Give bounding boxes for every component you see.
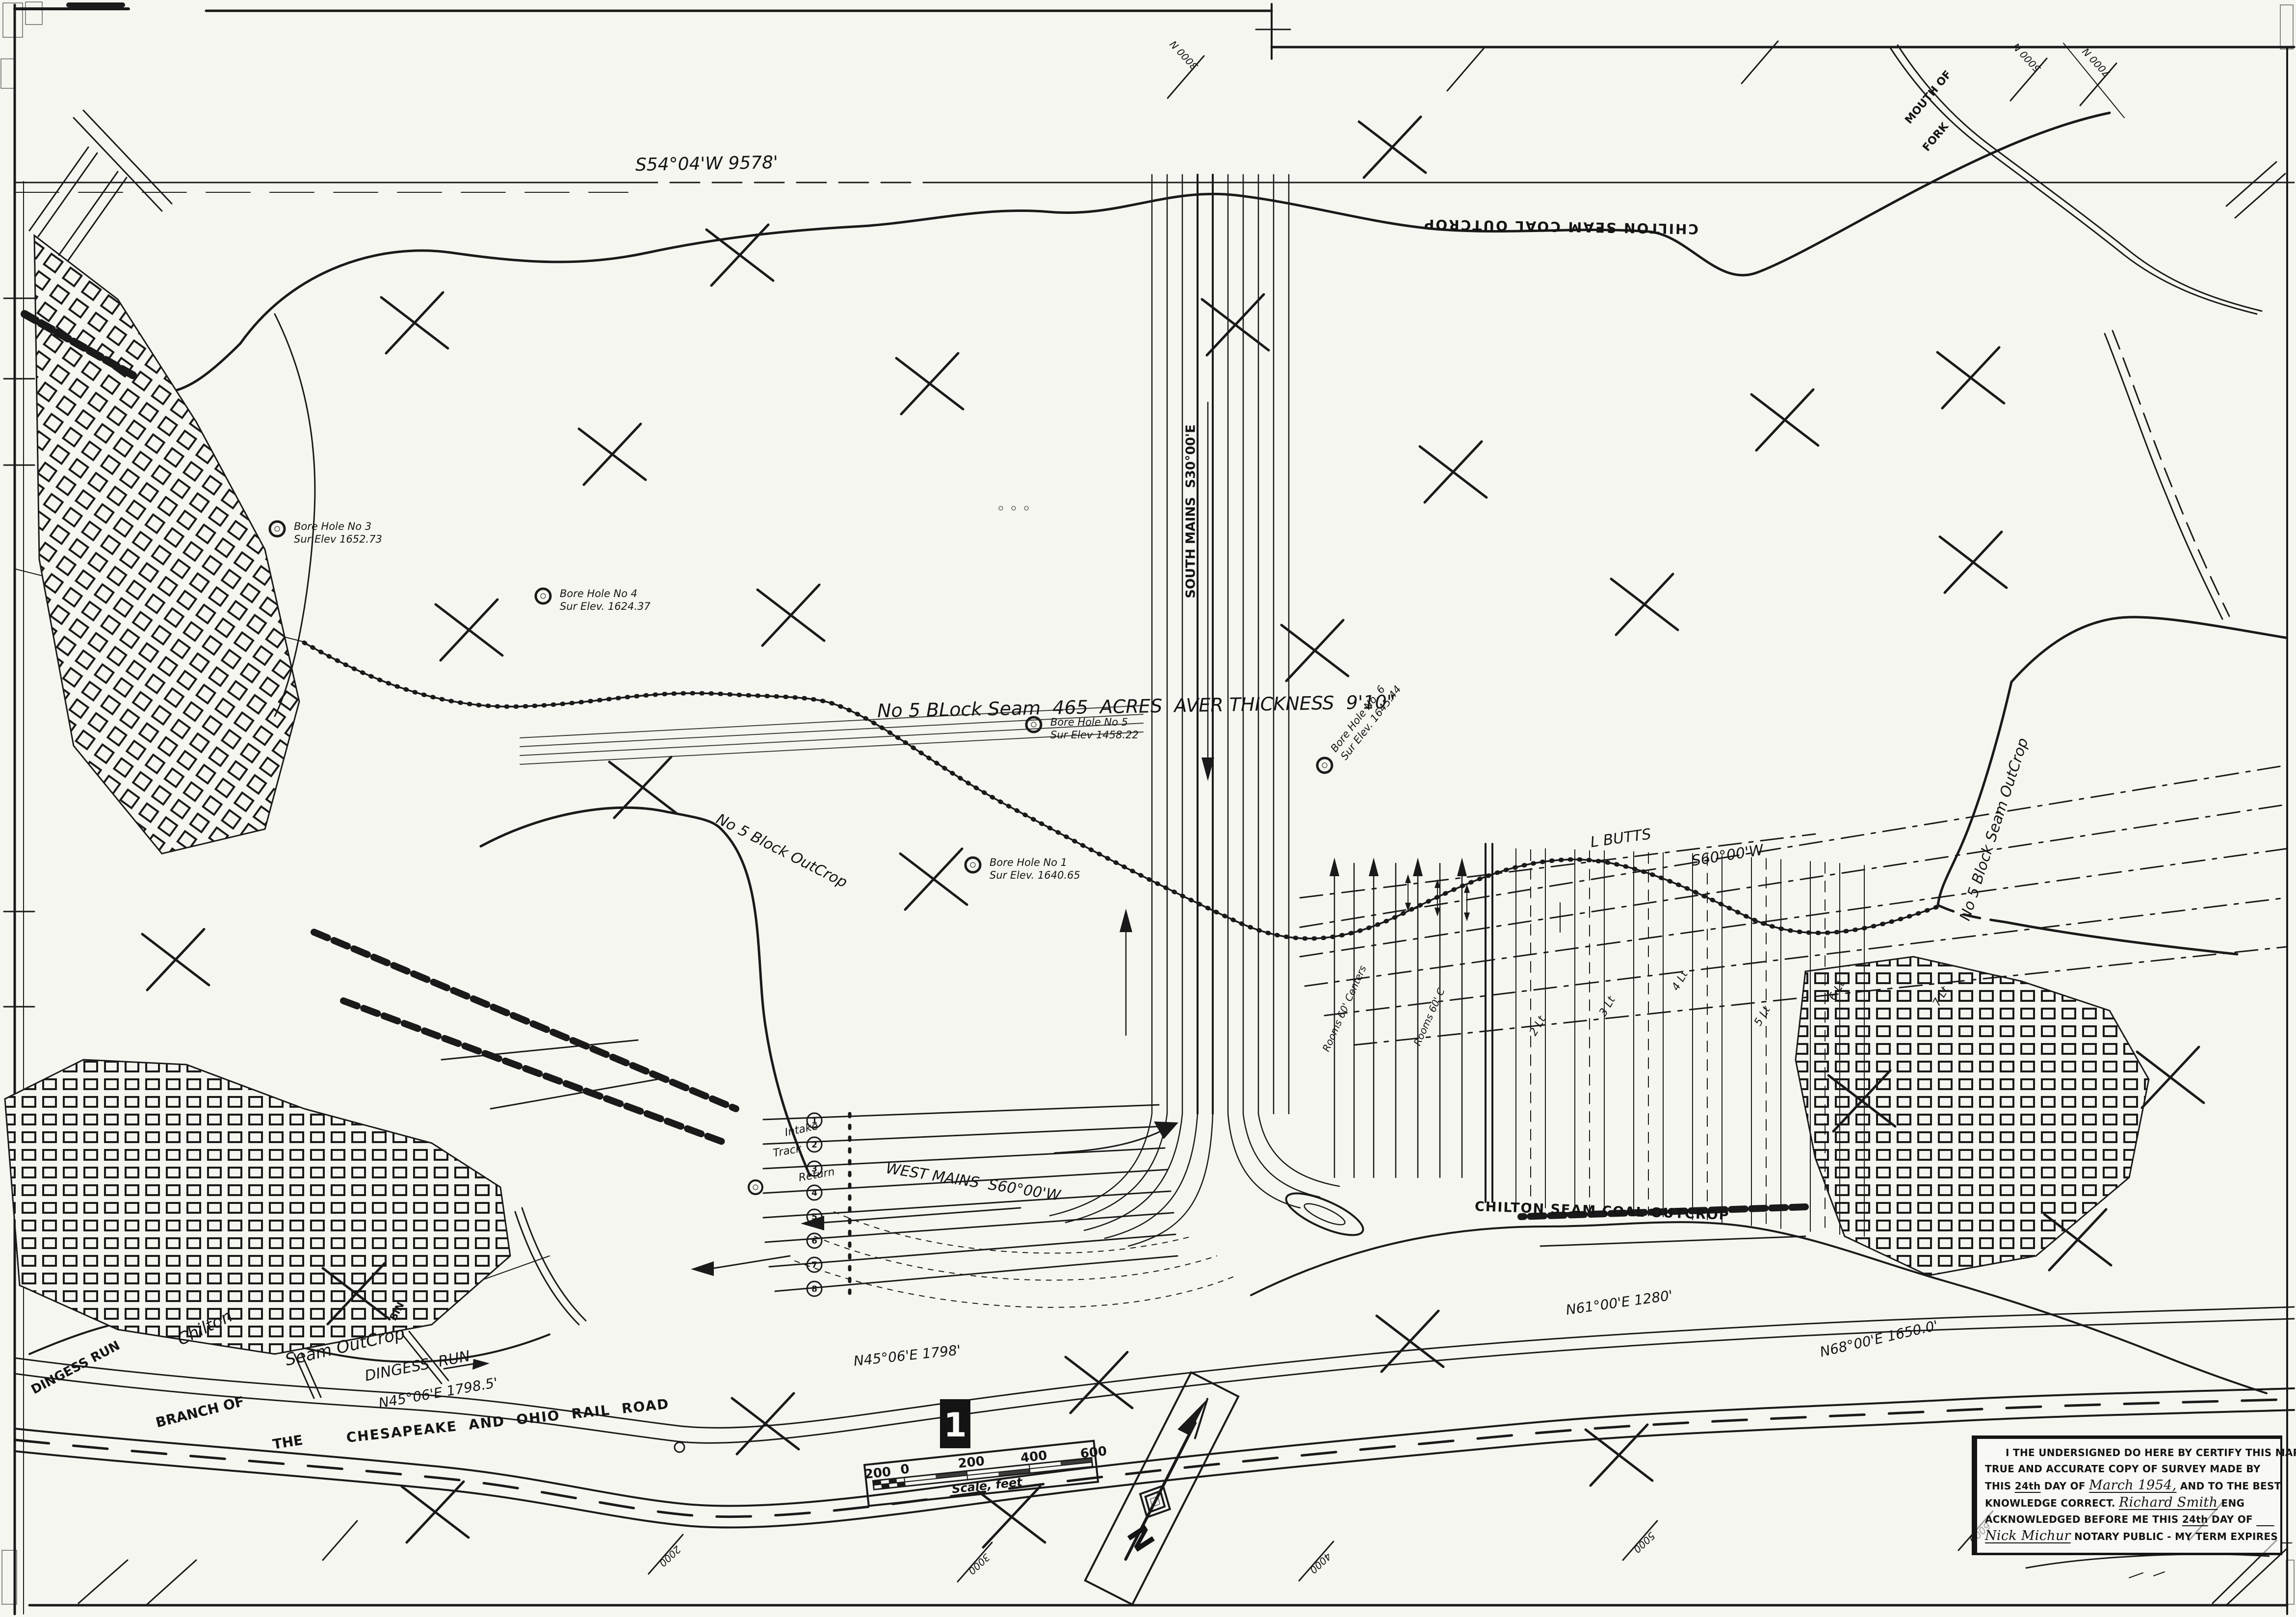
bore-hole-name: Bore Hole No 4 xyxy=(560,588,637,600)
bore-hole-name: Bore Hole No 3 xyxy=(294,521,371,532)
grid-tick xyxy=(323,1521,357,1560)
entry-number: 5 xyxy=(811,1212,817,1222)
north-letter: N xyxy=(1120,1519,1161,1558)
certificate-line: I THE UNDERSIGNED DO HERE BY CERTIFY THI… xyxy=(1985,1445,2277,1461)
survey-cross xyxy=(905,849,962,910)
certificate-line: KNOWLEDGE CORRECT. Richard Smith ENG xyxy=(1985,1494,2277,1512)
survey-cross xyxy=(1070,1352,1127,1413)
survey-cross xyxy=(407,1482,464,1542)
survey-cross xyxy=(1207,294,1264,355)
entry-number: 2 xyxy=(811,1140,817,1150)
entry-number: 6 xyxy=(811,1236,817,1246)
bore-hole: Bore Hole No 4Sur Elev. 1624.37 xyxy=(536,588,651,612)
survey-cross xyxy=(147,929,204,990)
survey-cross xyxy=(983,1487,1040,1547)
entry-number: 8 xyxy=(811,1284,817,1294)
survey-cross xyxy=(901,353,958,414)
north-arrow: N xyxy=(1085,1372,1238,1604)
property-lines xyxy=(15,43,2294,642)
survey-cross xyxy=(2142,1047,2199,1108)
bore-hole: Bore Hole No 1Sur Elev. 1640.65 xyxy=(965,857,1080,881)
butt-sections xyxy=(1300,765,2286,1236)
certificate-line: Nick Michur NOTARY PUBLIC - MY TERM EXPI… xyxy=(1985,1528,2277,1545)
map-label: S54°04'W 9578' xyxy=(635,154,779,175)
bore-hole-elev: Sur Elev 1458.22 xyxy=(1050,729,1139,741)
certificate-line: ACKNOWLEDGED BEFORE ME THIS 24th DAY OF xyxy=(1985,1512,2277,1528)
scanned-mine-map-sheet: Bore Hole No 3Sur Elev 1652.73Bore Hole … xyxy=(0,0,2296,1617)
survey-cross xyxy=(762,585,819,646)
sheet-border xyxy=(1,2,2294,1614)
certificate-box: I THE UNDERSIGNED DO HERE BY CERTIFY THI… xyxy=(1972,1435,2282,1555)
entry-number: 4 xyxy=(811,1188,817,1198)
scale-tick-0: 0 xyxy=(900,1462,910,1478)
certificate-line: TRUE AND ACCURATE COPY OF SURVEY MADE BY xyxy=(1985,1461,2277,1477)
bore-hole-elev: Sur Elev. 1624.37 xyxy=(560,600,651,612)
certificate-line: THIS 24th DAY OF March 1954, AND TO THE … xyxy=(1985,1477,2277,1494)
survey-cross xyxy=(441,600,497,660)
scale-tick-400: 400 xyxy=(1020,1448,1048,1466)
bore-hole: Bore Hole No 3Sur Elev 1652.73 xyxy=(270,521,382,545)
entry-number-circles: 12345678 xyxy=(807,1113,822,1296)
entry-number: 7 xyxy=(811,1260,817,1270)
scale-tick-200: 200 xyxy=(957,1454,985,1471)
bore-hole-elev: Sur Elev. 1640.65 xyxy=(990,869,1080,881)
survey-cross xyxy=(711,225,768,286)
bore-hole-name: Bore Hole No 1 xyxy=(990,857,1067,868)
survey-cross xyxy=(1591,1425,1647,1486)
certificate-scribbles xyxy=(2026,1554,2269,1578)
survey-cross xyxy=(1945,532,2002,593)
survey-cross xyxy=(1425,442,1482,502)
survey-cross xyxy=(1942,347,1999,408)
scale-tick-600: 600 xyxy=(1080,1444,1108,1461)
mine-workings xyxy=(5,110,2149,1398)
survey-cross xyxy=(1616,574,1673,635)
survey-cross xyxy=(584,424,641,485)
scale-bar: 200 0 200 400 600 Scale, feet xyxy=(863,1439,1110,1506)
bore-hole-elev: Sur Elev 1652.73 xyxy=(294,533,382,545)
map-label: SOUTH MAINS S30°00'E xyxy=(1184,424,1198,599)
scale-tick-200L: 200 xyxy=(864,1465,892,1483)
sheet-number-badge: 1 xyxy=(940,1399,970,1448)
survey-cross xyxy=(386,292,443,353)
survey-cross xyxy=(1286,620,1343,681)
grid-tick xyxy=(1447,49,1484,91)
certificate-text: I THE UNDERSIGNED DO HERE BY CERTIFY THI… xyxy=(1985,1445,2277,1545)
survey-cross xyxy=(1364,117,1421,178)
survey-cross xyxy=(1756,390,1813,450)
west-mains xyxy=(691,1105,1236,1307)
sheet-number: 1 xyxy=(943,1406,966,1445)
mine-map-canvas: Bore Hole No 3Sur Elev 1652.73Bore Hole … xyxy=(0,0,2296,1617)
